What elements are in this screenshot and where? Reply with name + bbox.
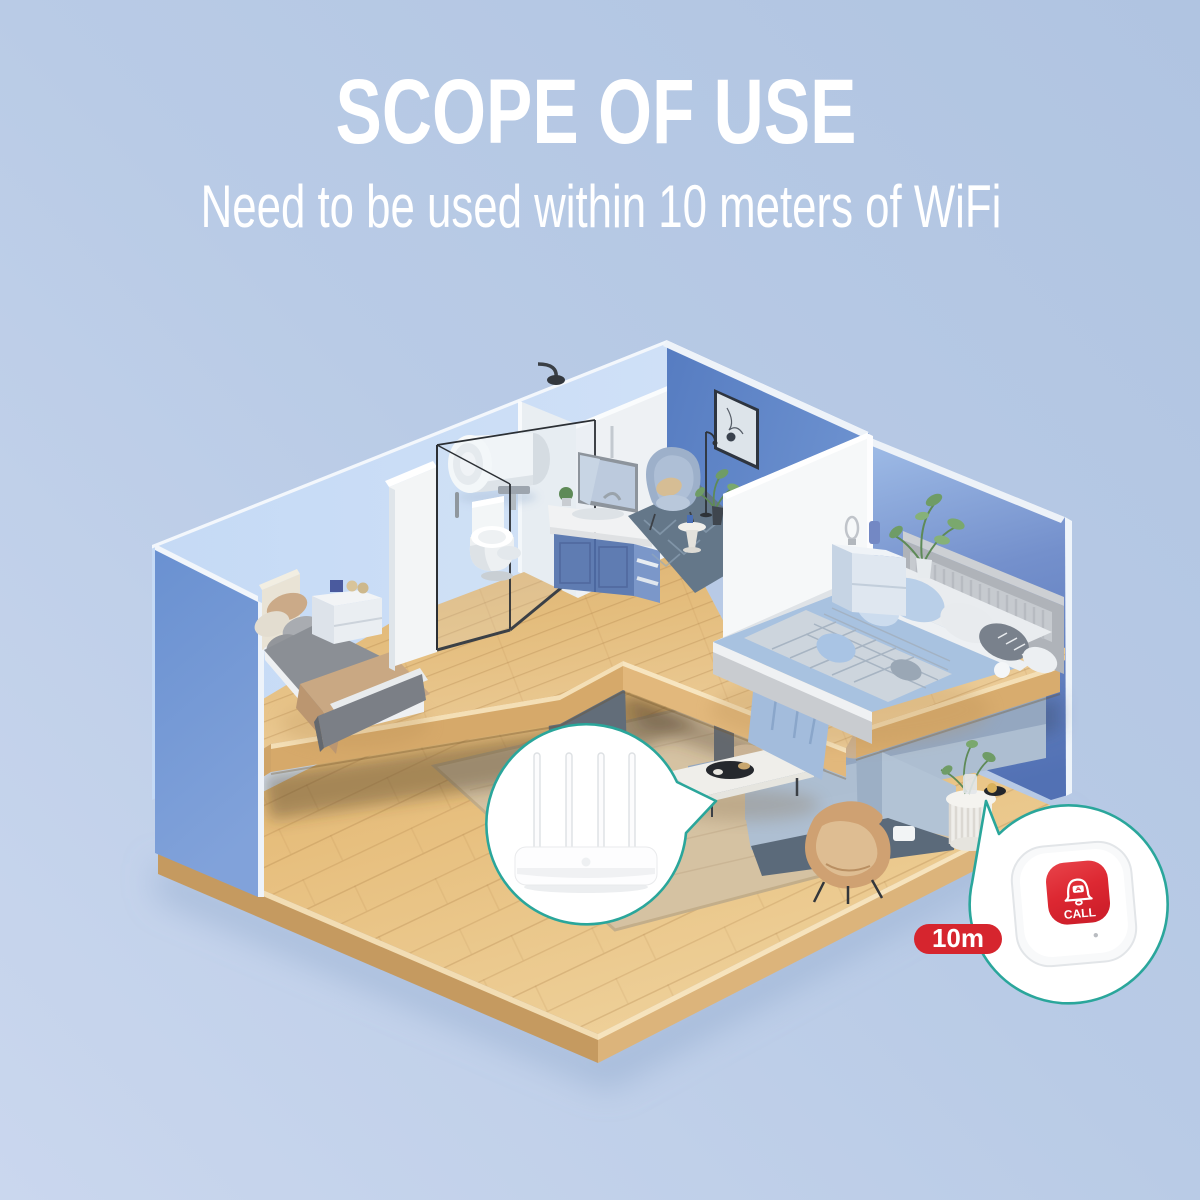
svg-text:CALL: CALL [1063,905,1096,922]
svg-text:Need to be used within 10 mete: Need to be used within 10 meters of WiFi [201,173,1002,240]
svg-text:SCOPE OF USE: SCOPE OF USE [336,61,857,164]
svg-text:10m: 10m [932,923,984,953]
